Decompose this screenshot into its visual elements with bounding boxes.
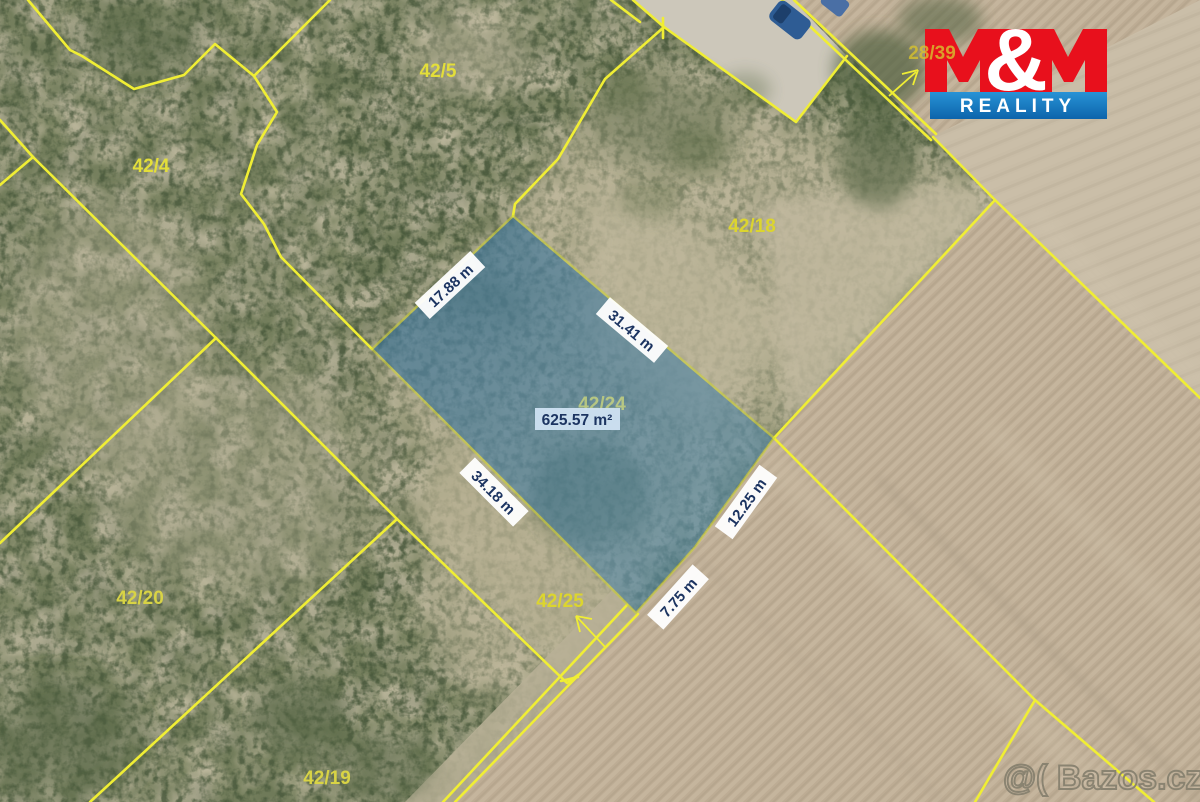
svg-text:28/39: 28/39 bbox=[908, 43, 956, 64]
svg-text:REALITY: REALITY bbox=[960, 96, 1076, 117]
svg-text:42/18: 42/18 bbox=[728, 216, 776, 237]
svg-text:42/25: 42/25 bbox=[536, 591, 584, 612]
svg-text:42/5: 42/5 bbox=[420, 61, 457, 82]
svg-text:42/4: 42/4 bbox=[133, 156, 170, 177]
svg-text:42/20: 42/20 bbox=[116, 588, 164, 609]
svg-text:42/19: 42/19 bbox=[303, 768, 351, 789]
svg-text:@( Bazos.cz: @( Bazos.cz bbox=[1003, 759, 1200, 797]
svg-text:625.57 m²: 625.57 m² bbox=[542, 412, 613, 429]
